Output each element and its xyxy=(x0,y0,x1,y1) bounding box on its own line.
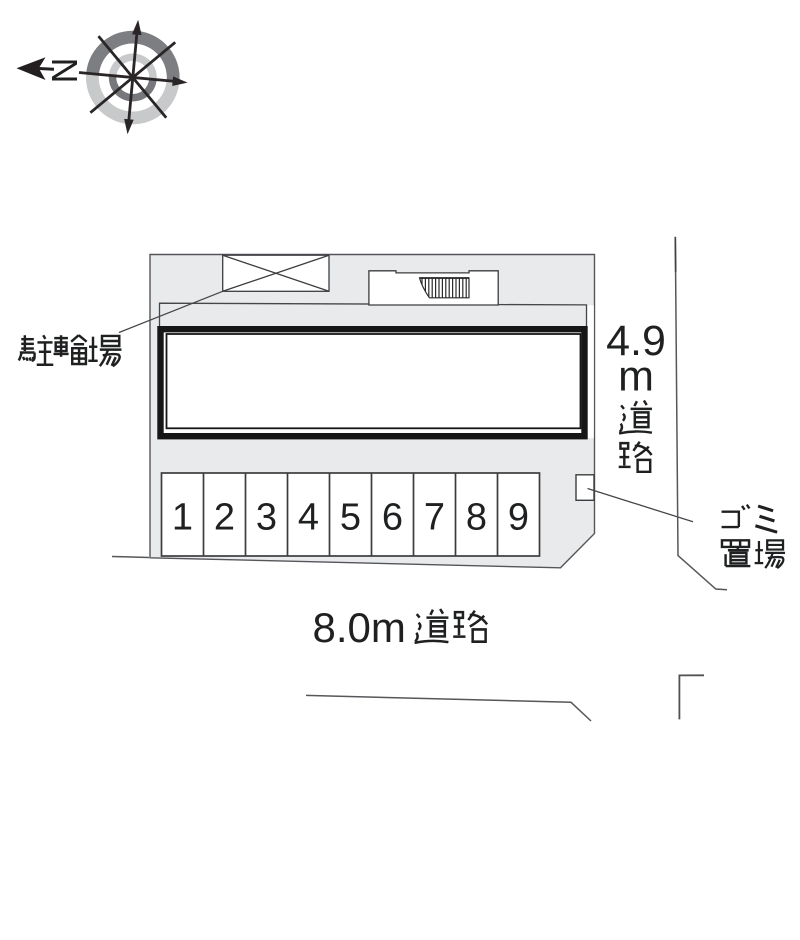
svg-text:1: 1 xyxy=(172,497,193,539)
svg-text:7: 7 xyxy=(424,497,445,539)
svg-text:m: m xyxy=(618,353,654,401)
svg-text:2: 2 xyxy=(214,497,235,539)
svg-text:3: 3 xyxy=(256,497,277,539)
svg-text:N: N xyxy=(44,58,85,84)
svg-text:4: 4 xyxy=(298,497,319,539)
svg-text:8.0m: 8.0m xyxy=(313,604,406,651)
svg-text:8: 8 xyxy=(466,497,487,539)
svg-text:9: 9 xyxy=(508,497,529,539)
svg-text:5: 5 xyxy=(340,497,361,539)
svg-text:6: 6 xyxy=(382,497,403,539)
